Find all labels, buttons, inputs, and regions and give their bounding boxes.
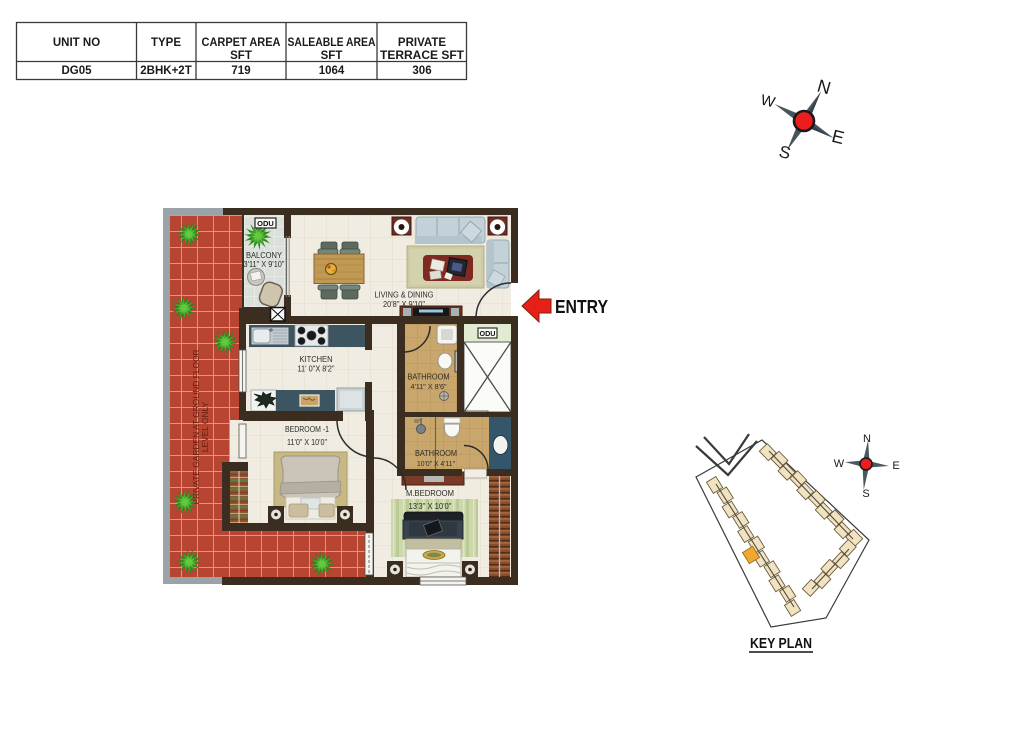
svg-text:PRIVATE: PRIVATE — [398, 37, 446, 49]
svg-text:CARPET AREA: CARPET AREA — [202, 37, 281, 49]
svg-text:719: 719 — [231, 65, 250, 77]
svg-text:11' 0"X 8'2": 11' 0"X 8'2" — [298, 365, 335, 374]
svg-text:SALEABLE AREA: SALEABLE AREA — [288, 37, 376, 49]
svg-text:M.BEDROOM: M.BEDROOM — [406, 488, 454, 498]
svg-text:13'3" X 10'0": 13'3" X 10'0" — [409, 502, 452, 511]
svg-text:N: N — [815, 76, 833, 99]
svg-text:KEY PLAN: KEY PLAN — [750, 636, 812, 652]
svg-text:KITCHEN: KITCHEN — [300, 354, 333, 364]
svg-text:W: W — [834, 458, 845, 470]
svg-text:20'8" X 9'10": 20'8" X 9'10" — [383, 300, 425, 309]
svg-text:306: 306 — [412, 65, 431, 77]
svg-text:BALCONY: BALCONY — [246, 251, 283, 260]
svg-text:TERRACE SFT: TERRACE SFT — [380, 50, 464, 62]
svg-text:ENTRY: ENTRY — [555, 297, 608, 317]
svg-text:W: W — [759, 92, 778, 112]
svg-text:SFT: SFT — [230, 50, 252, 62]
svg-text:LIVING & DINING: LIVING & DINING — [375, 290, 434, 300]
svg-text:E: E — [892, 460, 899, 472]
svg-text:S: S — [777, 142, 793, 163]
svg-text:SFT: SFT — [321, 50, 343, 62]
svg-text:2BHK+2T: 2BHK+2T — [140, 65, 191, 77]
svg-text:TYPE: TYPE — [151, 37, 181, 49]
svg-text:LEVEL ONLY: LEVEL ONLY — [200, 401, 210, 452]
svg-text:ODU: ODU — [257, 219, 274, 228]
svg-text:S: S — [862, 488, 869, 500]
svg-text:DG05: DG05 — [61, 65, 92, 77]
svg-text:BATHROOM: BATHROOM — [415, 449, 457, 458]
svg-text:1064: 1064 — [319, 65, 345, 77]
svg-text:11'0" X 10'0": 11'0" X 10'0" — [287, 438, 327, 447]
svg-text:E: E — [830, 126, 846, 148]
svg-text:10'0" X 4'11": 10'0" X 4'11" — [417, 459, 455, 468]
svg-text:N: N — [863, 433, 871, 445]
svg-text:ODU: ODU — [480, 329, 496, 338]
svg-text:UNIT NO: UNIT NO — [53, 37, 100, 49]
svg-text:3'11" X 9'10": 3'11" X 9'10" — [244, 260, 285, 269]
svg-text:BEDROOM -1: BEDROOM -1 — [285, 424, 329, 434]
svg-text:4'11" X 8'6": 4'11" X 8'6" — [411, 382, 447, 391]
svg-text:BATHROOM: BATHROOM — [408, 373, 450, 382]
